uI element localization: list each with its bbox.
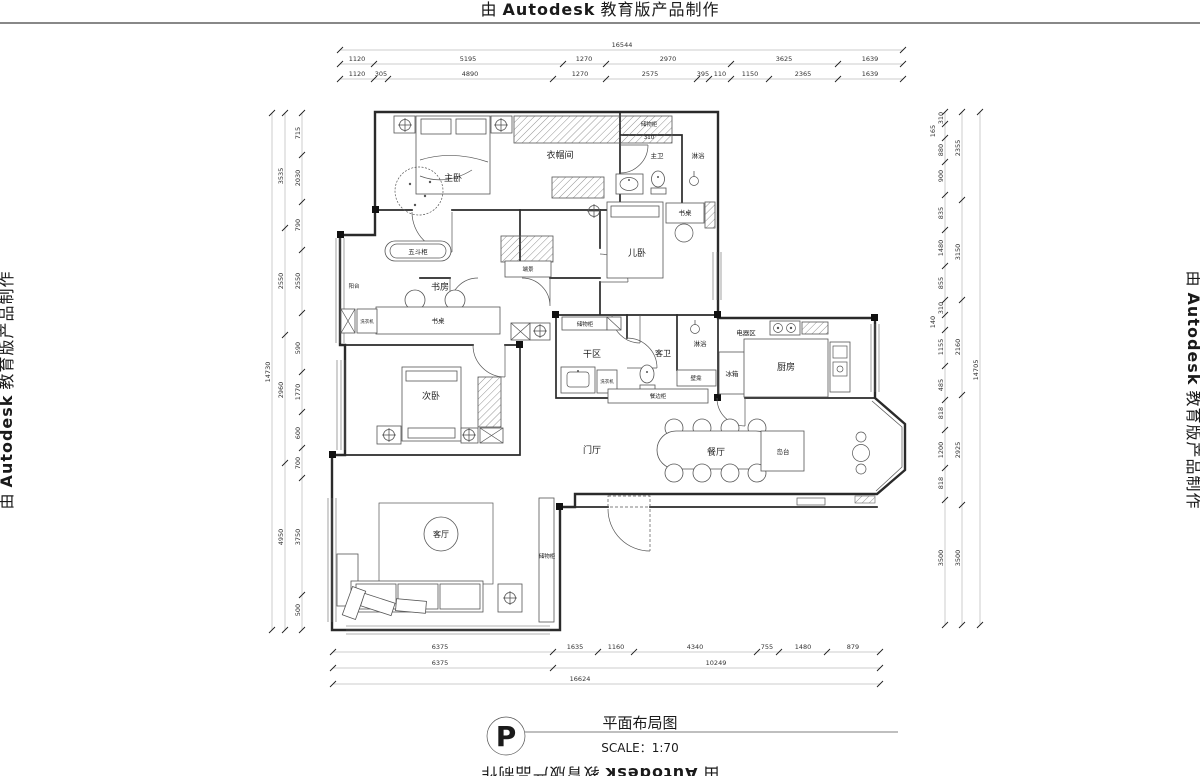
room-label-cloakroom: 衣帽间	[546, 149, 573, 161]
dim-label: 1160	[608, 643, 625, 651]
dim-label: 2960	[277, 382, 285, 399]
chair	[721, 464, 739, 482]
room-label-dining: 餐厅	[707, 446, 725, 458]
toilet	[640, 365, 655, 392]
room-label-kitchen: 厨房	[777, 361, 795, 373]
kids-bedroom: 书桌 儿卧	[587, 202, 704, 278]
dim-label: 1155	[937, 339, 945, 356]
watermark-suffix: 教育版产品制作	[1184, 390, 1200, 509]
dim-label: 2550	[294, 273, 302, 290]
label-island: 岛台	[777, 447, 790, 456]
dim-label: 395	[697, 70, 709, 78]
dim-label: 6375	[432, 643, 449, 651]
floor-plan-drawing: 由Autodesk教育版产品制作 由Autodesk教育版产品制作 由Autod…	[0, 0, 1200, 776]
label-dry-storage: 储物柜	[577, 320, 594, 328]
label-niche: 壁龛	[690, 374, 702, 382]
dimensions-right: 14705 310 165 880 900 835 1480 855 310 1…	[929, 112, 980, 566]
dimensions-left: 14730 3535 2550 2960 4950 715 2030 790 2…	[264, 127, 302, 616]
label-chest: 五斗柜	[408, 247, 428, 256]
dim-label: 305	[375, 70, 387, 78]
dim-label: 2970	[660, 55, 677, 63]
master-bedroom: 主卧	[394, 116, 512, 215]
dim-label: 1200	[937, 442, 945, 459]
dim-label: 485	[937, 379, 945, 391]
dim-label: 2355	[954, 140, 962, 157]
room-label-guest-bath: 客卫	[655, 348, 671, 358]
oven-tower	[830, 342, 850, 392]
dim-label: 1120	[349, 70, 366, 78]
dim-label: 2925	[954, 442, 962, 459]
dimensions-bottom: 6375 1635 1160 4340 755 1480 879 6375 10…	[432, 643, 859, 683]
watermark-brand: Autodesk	[1184, 293, 1200, 386]
dim-label: 16544	[612, 41, 633, 49]
room-label-guest-shower: 淋浴	[694, 339, 708, 348]
room-label-living: 客厅	[433, 529, 449, 539]
shower-head-icon	[690, 171, 699, 186]
watermark-top: 由Autodesk教育版产品制作	[0, 0, 1200, 23]
dim-label: 310	[937, 302, 945, 314]
drawing-title: 平面布局图	[602, 714, 677, 732]
dim-label: 818	[937, 477, 945, 489]
chair	[693, 464, 711, 482]
dimensions-top: 16544 1120 5195 1270 2970 3625 1639 1120…	[349, 41, 879, 78]
watermark-bottom: 由Autodesk教育版产品制作	[481, 764, 720, 776]
shower-head-icon	[691, 320, 700, 334]
dim-label: 880	[937, 144, 945, 156]
dim-label: 2030	[294, 170, 302, 187]
label-kids-desk: 书桌	[679, 208, 693, 217]
dim-label: 3625	[776, 55, 793, 63]
label-closet-top: 储物柜	[641, 120, 658, 128]
svg-text:由Autodesk教育版产品制作: 由Autodesk教育版产品制作	[1184, 271, 1200, 510]
label-sideboard: 餐边柜	[650, 392, 667, 400]
dim-label: 3500	[937, 550, 945, 567]
decor-circle	[853, 445, 870, 462]
room-label-master-bedroom: 主卧	[444, 172, 462, 184]
dim-label: 110	[714, 70, 726, 78]
svg-text:由Autodesk教育版产品制作: 由Autodesk教育版产品制作	[481, 764, 720, 776]
dim-label: 3750	[294, 529, 302, 546]
dim-label: 140	[929, 316, 937, 328]
decor-circle	[856, 432, 866, 442]
living-room: 客厅 储物柜	[337, 498, 556, 622]
dim-label: 715	[294, 127, 302, 139]
dim-label: 1639	[862, 55, 879, 63]
dim-label: 818	[937, 407, 945, 419]
room-label-foyer: 门厅	[583, 444, 601, 456]
dim-label: 3150	[954, 244, 962, 261]
dim-label: 14730	[264, 362, 272, 383]
dim-label: 2365	[795, 70, 812, 78]
dim-label: 4340	[687, 643, 704, 651]
room-label-study: 书房	[431, 281, 449, 293]
dim-label: 3500	[954, 550, 962, 567]
dim-label: 590	[294, 342, 302, 354]
watermark-prefix: 由	[481, 0, 498, 19]
label-end-feature: 端景	[522, 265, 534, 273]
dim-label: 835	[937, 207, 945, 219]
dim-label: 2550	[277, 273, 285, 290]
svg-text:由Autodesk教育版产品制作: 由Autodesk教育版产品制作	[0, 271, 16, 510]
dim-label: 1480	[795, 643, 812, 651]
sofa	[337, 554, 483, 619]
label-living-storage: 储物柜	[539, 552, 556, 560]
dim-label: 700	[294, 457, 302, 469]
title-block: P 平面布局图 SCALE：1:70	[487, 714, 898, 755]
dim-label: 310	[937, 112, 945, 124]
dim-label: 1770	[294, 384, 302, 401]
dim-label: 1120	[349, 55, 366, 63]
label-appliance-area: 电器区	[736, 328, 756, 337]
label-study-desk: 书桌	[432, 316, 446, 325]
watermark-suffix: 教育版产品制作	[600, 0, 719, 19]
watermark-left: 由Autodesk教育版产品制作	[0, 271, 16, 510]
watermark-prefix: 由	[0, 492, 16, 509]
kitchen: 电器区 冰箱 厨房	[719, 321, 850, 397]
watermark-brand: Autodesk	[0, 395, 16, 488]
dim-label: 2575	[642, 70, 659, 78]
dim-label: 879	[847, 643, 859, 651]
room-label-master-bath: 主卫	[651, 151, 665, 160]
dim-label: 4890	[462, 70, 479, 78]
room-label-dry-area: 干区	[583, 349, 601, 360]
dim-label: 755	[761, 643, 773, 651]
drawing-scale: SCALE：1:70	[601, 741, 678, 755]
dim-label: 10249	[706, 659, 727, 667]
watermark-suffix: 教育版产品制作	[481, 764, 600, 776]
dry-area-guest-bath: 储物柜 干区 洗衣机 客卫 淋浴 壁龛 餐边柜	[561, 317, 716, 403]
dim-label: 1639	[862, 70, 879, 78]
dim-label: 310	[644, 135, 655, 141]
chair	[675, 224, 693, 242]
dim-label: 16624	[570, 675, 591, 683]
watermark-right: 由Autodesk教育版产品制作	[1184, 271, 1200, 510]
room-label-second-bedroom: 次卧	[422, 390, 440, 402]
watermark-suffix: 教育版产品制作	[0, 271, 16, 390]
north-symbol: P	[496, 720, 517, 753]
dim-label: 14705	[972, 360, 980, 381]
watermark-prefix: 由	[702, 764, 719, 776]
dim-label: 6375	[432, 659, 449, 667]
dim-label: 600	[294, 427, 302, 439]
dim-label: 790	[294, 219, 302, 231]
label-washer-balcony: 洗衣机	[360, 318, 374, 325]
foyer-dining: 门厅 餐厅 岛台	[583, 419, 870, 482]
watermark-brand: Autodesk	[605, 764, 698, 776]
stove-burners	[770, 321, 800, 335]
decor-circle	[856, 464, 866, 474]
ceiling-lamp-icon	[587, 204, 601, 218]
chair	[665, 464, 683, 482]
dim-label: 1635	[567, 643, 584, 651]
room-label-master-shower: 淋浴	[692, 151, 706, 160]
label-washer: 洗衣机	[600, 378, 614, 385]
svg-text:由Autodesk教育版产品制作: 由Autodesk教育版产品制作	[481, 0, 720, 19]
dim-label: 500	[294, 604, 302, 616]
dim-label: 1270	[576, 55, 593, 63]
dim-label: 855	[937, 277, 945, 289]
label-fridge: 冰箱	[726, 369, 740, 378]
watermark-brand: Autodesk	[503, 0, 596, 19]
dim-label: 5195	[460, 55, 477, 63]
room-label-kids-bedroom: 儿卧	[628, 247, 646, 259]
dim-label: 165	[929, 125, 937, 137]
watermark-prefix: 由	[1184, 271, 1200, 288]
storage-cabinet-tall	[539, 498, 554, 622]
entry-door-opening	[608, 496, 650, 507]
dim-label: 1150	[742, 70, 759, 78]
dim-label: 3535	[277, 168, 285, 185]
toilet	[651, 171, 666, 194]
dim-label: 1270	[572, 70, 589, 78]
dim-label: 4950	[277, 529, 285, 546]
dim-label: 1480	[937, 240, 945, 257]
dim-label: 2160	[954, 339, 962, 356]
dim-label: 900	[937, 170, 945, 182]
room-label-balcony: 阳台	[348, 282, 360, 290]
